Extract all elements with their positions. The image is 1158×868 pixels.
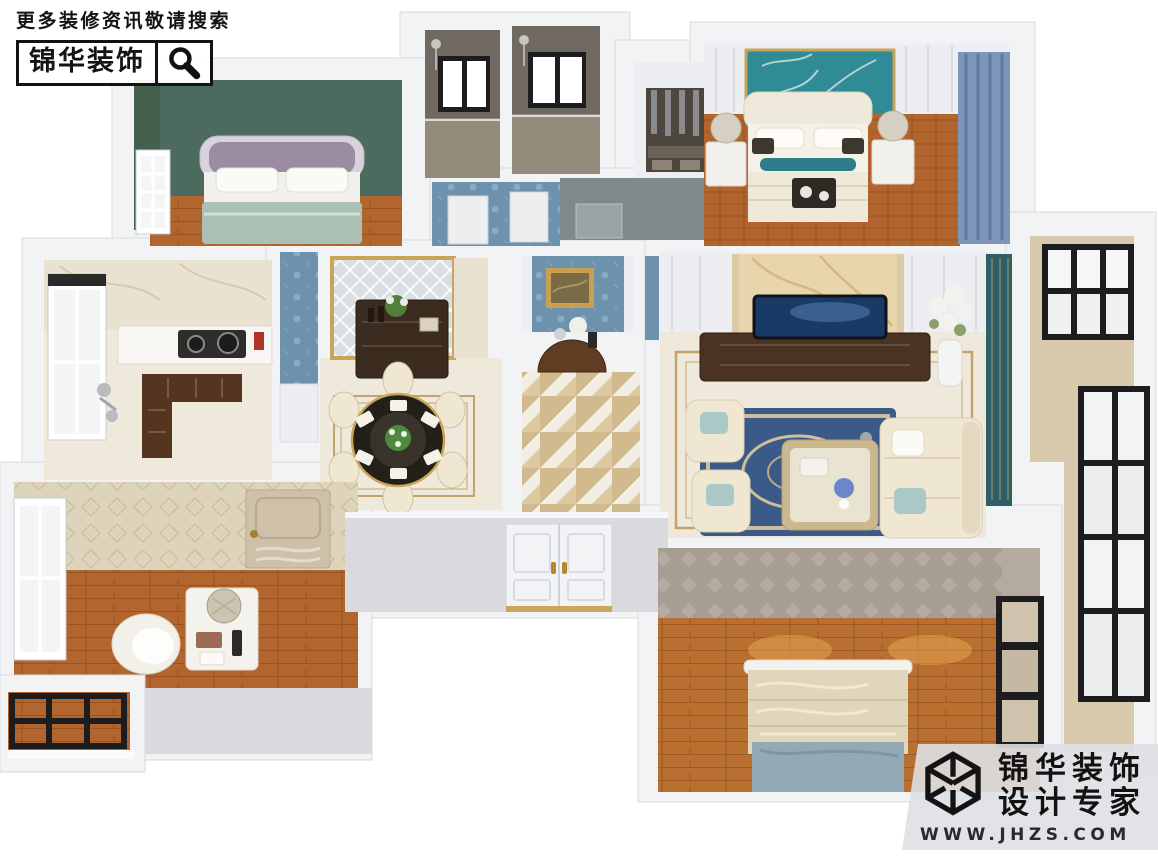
entry-double-door <box>506 524 612 612</box>
watermark-brand-label: 锦华装饰 <box>19 43 158 83</box>
study-window <box>14 498 66 660</box>
flower-vase <box>569 317 587 335</box>
master-bed <box>744 92 872 222</box>
armchair <box>686 400 744 462</box>
coffee-table <box>782 440 878 530</box>
tv-console <box>700 333 930 381</box>
balcony-small <box>0 675 145 772</box>
shower-head-icon <box>519 35 529 45</box>
kitchen-counter <box>118 326 272 364</box>
door-handle <box>551 562 556 574</box>
footer-brand: 锦华装饰 <box>998 752 1146 786</box>
footer-website: WWW.JHZS.COM <box>920 825 1131 845</box>
bed-south <box>744 660 912 792</box>
room-living <box>645 252 1012 538</box>
apartment-3d-floorplan <box>0 0 1158 868</box>
sofa <box>880 418 982 538</box>
hallway-north <box>432 178 712 246</box>
blue-flowers <box>834 478 854 498</box>
nightstand <box>872 140 914 184</box>
study-chair <box>112 614 180 674</box>
interior-door <box>448 196 488 244</box>
television <box>754 296 886 338</box>
bedroom-window <box>136 150 170 234</box>
bed-throw <box>752 742 904 792</box>
bedroom-window <box>996 596 1044 748</box>
footer-tagline: 设计专家 <box>998 786 1146 820</box>
watermark-search-box: 锦华装饰 <box>16 40 213 86</box>
study-desk <box>186 588 258 670</box>
door-handle <box>562 562 567 574</box>
door-knob <box>250 530 258 538</box>
room-bathroom-left <box>425 30 500 178</box>
closet-door <box>576 204 622 238</box>
room-master-bedroom <box>704 44 1010 246</box>
cube-logo-icon <box>920 750 986 822</box>
room-foyer <box>522 256 640 512</box>
watermark-brand-footer: 锦华装饰 设计专家 WWW.JHZS.COM <box>902 744 1158 850</box>
room-kitchen <box>44 260 272 480</box>
interior-door <box>510 192 548 242</box>
framed-painting <box>546 268 594 308</box>
balcony-window-right <box>1078 386 1150 702</box>
study-door <box>246 490 330 568</box>
floorplan-render-image: 更多装修资讯敬请搜索 锦华装饰 锦华装饰 设计专家 WWW.JHZS.COM <box>0 0 1158 868</box>
bed-green-room <box>200 136 364 244</box>
kitchen-window <box>48 274 106 440</box>
entry-front-wall <box>345 512 668 612</box>
study-front-wall <box>120 688 372 754</box>
table-lamp <box>711 113 741 143</box>
shower-head-icon <box>431 39 441 49</box>
room-bedroom-north <box>134 80 402 246</box>
balcony-window-top <box>1042 244 1134 340</box>
room-bathroom-right <box>512 26 600 174</box>
foyer-tile-floor <box>522 372 640 512</box>
nightstand <box>706 142 746 186</box>
bed-tray <box>792 178 836 208</box>
magnifier-icon <box>158 43 210 83</box>
watermark-slogan: 更多装修资讯敬请搜索 <box>16 6 231 33</box>
table-lamp <box>878 111 908 141</box>
bolster-pillow <box>760 158 856 171</box>
armchair <box>692 470 750 532</box>
table-centerpiece-plant <box>385 425 411 451</box>
watermark-search: 更多装修资讯敬请搜索 锦华装饰 <box>16 6 231 86</box>
